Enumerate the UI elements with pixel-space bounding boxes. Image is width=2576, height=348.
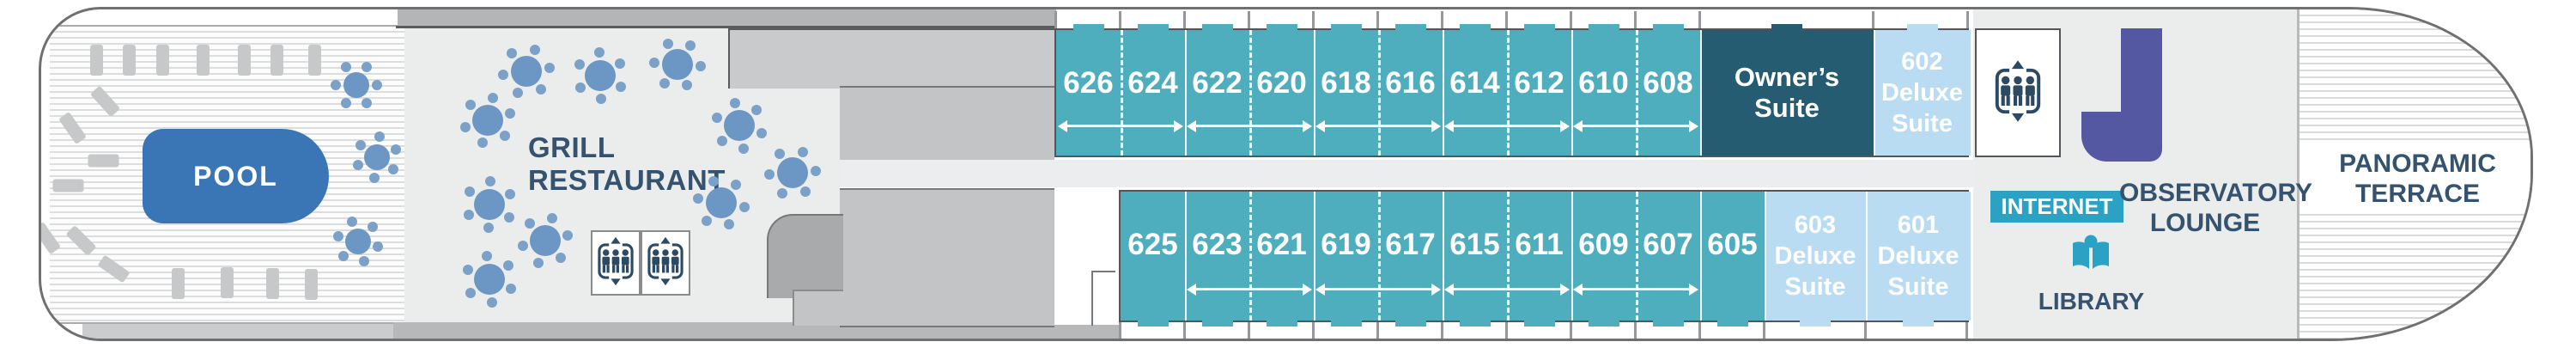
chair <box>359 256 369 266</box>
cabin-divider <box>1185 30 1187 156</box>
suite-label-line: Suite <box>1754 93 1820 124</box>
balcony-partition <box>1864 322 1867 341</box>
superstructure-block <box>840 188 1054 327</box>
connecting-cabins-arrow <box>1324 288 1432 290</box>
cabin-number: 622 <box>1192 66 1242 156</box>
chair <box>547 213 557 223</box>
deck-lounger <box>308 45 321 76</box>
connecting-cabins-arrow <box>1582 288 1690 290</box>
balcony-door <box>1202 24 1233 34</box>
chair <box>544 63 555 73</box>
balcony-door <box>1589 316 1619 327</box>
suite-label-line: 601 <box>1898 210 1939 241</box>
suite-label-line: Deluxe <box>1881 77 1963 108</box>
chair <box>525 218 535 229</box>
balcony-door <box>1460 316 1491 327</box>
suite-603[interactable]: 603DeluxeSuite <box>1765 192 1866 321</box>
chair <box>391 144 401 155</box>
cabin-number: 607 <box>1643 228 1692 321</box>
balcony-door <box>1524 24 1555 34</box>
cabin-divider <box>1249 192 1252 321</box>
balcony-partition <box>1570 11 1572 28</box>
balcony-partition <box>1965 322 1968 341</box>
superstructure-block <box>840 86 1054 163</box>
chair <box>503 260 513 271</box>
deck-lounger <box>53 180 84 192</box>
suite-divider <box>1866 192 1868 321</box>
superstructure-top-band <box>398 9 1056 27</box>
balcony-partition <box>1505 322 1508 341</box>
balcony-partition <box>1763 322 1765 341</box>
terrace-label: PANORAMIC TERRACE <box>2300 149 2533 209</box>
deck-lounger <box>156 45 169 76</box>
deck-lounger <box>90 45 103 76</box>
internet-label: INTERNET <box>2002 193 2113 220</box>
suite-label-line: Suite <box>1888 272 1949 302</box>
deck-lounger <box>305 269 318 300</box>
cabin-divider <box>1443 30 1444 156</box>
balcony-partition <box>1441 322 1443 341</box>
balcony-door <box>1903 316 1934 327</box>
grill-restaurant-label: GRILL RESTAURANT <box>528 131 726 197</box>
superstructure-block <box>793 290 843 326</box>
cabin-number: 608 <box>1643 66 1692 156</box>
balcony-partition <box>1376 322 1379 341</box>
chair <box>775 149 785 159</box>
chair <box>505 108 515 119</box>
chair <box>465 288 476 298</box>
stairwell-block <box>767 214 843 298</box>
balcony-partition <box>1966 11 1969 28</box>
dining-table <box>343 72 369 98</box>
balcony-partition <box>1505 11 1508 28</box>
dining-table <box>511 56 542 87</box>
dining-table <box>345 229 371 254</box>
cabin-divider <box>1636 30 1638 156</box>
balcony-door <box>1267 316 1297 327</box>
service-area-notch <box>1091 271 1115 326</box>
cabin-number: 610 <box>1578 66 1628 156</box>
cabin-number: 619 <box>1321 228 1370 321</box>
cabin-divider <box>1378 30 1381 156</box>
forward-elevator-box <box>1975 28 2061 157</box>
cabin-divider <box>1249 30 1252 156</box>
chair <box>341 98 351 108</box>
internet-badge: INTERNET <box>1990 191 2123 223</box>
cabin-divider <box>1700 30 1702 156</box>
cabin-number: 605 <box>1707 228 1757 321</box>
balcony-partition <box>1698 11 1701 28</box>
suite-label-line: Owner’s <box>1735 62 1839 93</box>
cabin-divider <box>1700 192 1702 321</box>
balcony-partition <box>1312 11 1315 28</box>
cabin-605[interactable]: 605 <box>1700 192 1765 321</box>
balcony-partition <box>1698 322 1701 341</box>
superstructure-block <box>728 28 1056 89</box>
chair <box>505 189 515 199</box>
balcony-door <box>1460 24 1491 34</box>
dining-table <box>724 110 755 141</box>
balcony-door <box>1331 24 1362 34</box>
balcony-door <box>1717 316 1748 327</box>
cabin-618[interactable]: 618 <box>1314 30 1378 156</box>
connecting-cabins-arrow <box>1582 125 1690 127</box>
balcony-door <box>1524 316 1555 327</box>
observatory-label-line1: OBSERVATORY <box>2119 178 2291 208</box>
cabin-divider <box>1121 30 1123 156</box>
dining-table <box>364 144 390 170</box>
balcony-door <box>1202 316 1233 327</box>
cabin-612[interactable]: 612 <box>1507 30 1571 156</box>
balcony-partition <box>1312 322 1315 341</box>
balcony-door <box>1395 24 1426 34</box>
dining-table <box>662 49 693 80</box>
chair <box>530 45 540 55</box>
stairs-shape <box>2081 112 2162 162</box>
cabin-row-bottom: 625623621619617615611609607605603DeluxeS… <box>1119 190 1969 322</box>
deck-lounger <box>238 45 251 76</box>
dining-table <box>706 187 737 218</box>
chair <box>756 128 767 138</box>
balcony-band-top <box>1054 11 1969 28</box>
connecting-cabins-arrow <box>1195 288 1303 290</box>
chair <box>649 58 659 68</box>
chair <box>487 297 497 308</box>
chair <box>368 222 378 232</box>
elevator-icon <box>593 236 638 290</box>
panoramic-terrace-area: PANORAMIC TERRACE <box>2300 9 2533 341</box>
cabin-number: 620 <box>1256 66 1306 156</box>
cabin-divider <box>1765 192 1766 321</box>
balcony-door <box>1331 316 1362 327</box>
deck-lounger <box>197 45 210 76</box>
cabin-number: 617 <box>1385 228 1435 321</box>
balcony-door <box>1395 316 1426 327</box>
cabin-623[interactable]: 623 <box>1185 192 1249 321</box>
stern-lower-deck-band <box>82 324 393 341</box>
cabin-621[interactable]: 621 <box>1249 192 1314 321</box>
elevator-box <box>641 230 690 296</box>
balcony-partition <box>1119 322 1121 341</box>
balcony-partition <box>1570 322 1572 341</box>
chair <box>764 169 775 180</box>
dining-table <box>530 225 561 256</box>
chair <box>739 202 750 212</box>
cabin-number: 626 <box>1063 66 1113 156</box>
cabin-divider <box>1314 192 1315 321</box>
balcony-partition <box>1054 11 1057 28</box>
chair <box>738 143 749 154</box>
grill-label-line1: GRILL <box>528 131 726 164</box>
cabin-number: 612 <box>1514 66 1564 156</box>
suite-owners-suite[interactable]: Owner’sSuite <box>1700 30 1874 156</box>
cabin-616[interactable]: 616 <box>1378 30 1443 156</box>
connecting-cabins-arrow <box>1066 125 1175 127</box>
deck-lounger <box>88 155 119 168</box>
cabin-607[interactable]: 607 <box>1636 192 1700 321</box>
balcony-partition <box>1248 11 1250 28</box>
elevator-icon <box>1990 59 2046 127</box>
dining-table <box>474 189 505 220</box>
cabin-number: 621 <box>1256 228 1306 321</box>
connecting-cabins-arrow <box>1195 125 1303 127</box>
balcony-partition <box>1634 322 1637 341</box>
balcony-partition <box>1183 11 1186 28</box>
cabin-divider <box>1185 192 1187 321</box>
balcony-door <box>1800 316 1831 327</box>
cabin-617[interactable]: 617 <box>1378 192 1443 321</box>
chair <box>533 258 544 268</box>
chair <box>811 166 821 176</box>
cabin-row-top: 626624622620618616614612610608Owner’sSui… <box>1054 28 1969 157</box>
cabin-divider <box>1507 192 1510 321</box>
cabin-615[interactable]: 615 <box>1443 192 1507 321</box>
suite-602[interactable]: 602DeluxeSuite <box>1874 30 1971 156</box>
grill-label-line2: RESTAURANT <box>528 164 726 197</box>
chair <box>798 147 808 157</box>
balcony-partition <box>1376 11 1379 28</box>
deck-lounger <box>172 268 185 299</box>
observatory-label-line2: LOUNGE <box>2119 208 2291 238</box>
cabin-divider <box>1378 192 1381 321</box>
balcony-partition <box>1248 322 1250 341</box>
cabin-622[interactable]: 622 <box>1185 30 1249 156</box>
cabin-number: 616 <box>1385 66 1435 156</box>
deck-plan: PANORAMIC TERRACE POOL GRILL RESTAURANT <box>0 0 2576 348</box>
cabin-divider <box>1571 30 1573 156</box>
cabin-number: 625 <box>1127 228 1177 321</box>
chair <box>702 216 712 226</box>
balcony-partition <box>1441 11 1443 28</box>
chair <box>369 173 380 183</box>
chair <box>663 39 673 49</box>
chair <box>504 212 514 223</box>
balcony-door <box>1653 24 1684 34</box>
deck-lounger <box>123 45 136 76</box>
midship-elevators <box>591 230 690 296</box>
terrace-label-line1: PANORAMIC <box>2300 149 2533 179</box>
dining-table <box>777 157 808 188</box>
chair <box>717 136 727 146</box>
pool: POOL <box>143 129 329 223</box>
suite-label-line: 603 <box>1795 210 1836 241</box>
balcony-door <box>1267 24 1297 34</box>
dining-table <box>472 105 503 136</box>
connecting-cabins-arrow <box>1453 125 1561 127</box>
suite-label-line: 602 <box>1901 46 1942 77</box>
library-label: LIBRARY <box>2012 288 2171 315</box>
connecting-cabins-arrow <box>1453 288 1561 290</box>
cabin-number: 615 <box>1449 228 1499 321</box>
cabin-divider <box>1314 30 1315 156</box>
cabin-divider <box>1507 30 1510 156</box>
balcony-partition <box>1634 11 1637 28</box>
chair <box>708 176 719 186</box>
chair <box>506 284 516 294</box>
cabin-608[interactable]: 608 <box>1636 30 1700 156</box>
cabin-610[interactable]: 610 <box>1571 30 1636 156</box>
chair <box>483 223 494 233</box>
suite-label-line: Suite <box>1785 272 1846 302</box>
chair <box>536 84 546 95</box>
deck-lounger <box>270 45 283 76</box>
dining-table <box>585 60 616 91</box>
suite-label-line: Suite <box>1892 108 1953 139</box>
chair <box>596 94 606 104</box>
suite-label-line: Deluxe <box>1774 241 1856 272</box>
cabin-626[interactable]: 626 <box>1056 30 1121 156</box>
chair <box>616 82 626 92</box>
balcony-door <box>1138 316 1169 327</box>
balcony-door <box>1771 24 1802 34</box>
terrace-label-line2: TERRACE <box>2300 179 2533 209</box>
elevator-box <box>591 230 641 296</box>
cabin-614[interactable]: 614 <box>1443 30 1507 156</box>
cabin-divider <box>1636 192 1638 321</box>
cabin-number: 614 <box>1449 66 1499 156</box>
suite-divider <box>1874 30 1875 156</box>
cabin-number: 624 <box>1127 66 1177 156</box>
balcony-door <box>1589 24 1619 34</box>
chair <box>372 80 382 90</box>
elevator-icon <box>643 236 688 290</box>
chair <box>361 98 372 108</box>
chair <box>518 241 528 251</box>
book-icon <box>2069 233 2112 276</box>
chair <box>373 241 383 252</box>
cabin-number: 609 <box>1578 228 1628 321</box>
balcony-door <box>1653 316 1684 327</box>
cabin-divider <box>1571 192 1573 321</box>
ship-hull: PANORAMIC TERRACE POOL GRILL RESTAURANT <box>39 7 2533 341</box>
cabin-number: 618 <box>1321 66 1370 156</box>
deck-lounger <box>221 267 234 298</box>
suite-label-line: Deluxe <box>1877 241 1959 272</box>
suite-601[interactable]: 601DeluxeSuite <box>1866 192 1971 321</box>
chair <box>730 98 740 108</box>
cabin-number: 623 <box>1192 228 1242 321</box>
connecting-cabins-arrow <box>1324 125 1432 127</box>
balcony-partition <box>1872 11 1874 28</box>
cabin-625[interactable]: 625 <box>1121 192 1185 321</box>
chair <box>659 78 670 89</box>
observatory-lounge-label: OBSERVATORY LOUNGE <box>2119 178 2291 238</box>
cabin-609[interactable]: 609 <box>1571 192 1636 321</box>
cabin-corridor <box>840 160 1975 187</box>
cabin-611[interactable]: 611 <box>1507 192 1571 321</box>
balcony-door <box>1907 24 1938 34</box>
pool-label: POOL <box>193 161 278 192</box>
chair <box>615 58 625 69</box>
chair <box>594 47 605 58</box>
chair <box>355 140 366 150</box>
balcony-partition <box>1183 322 1186 341</box>
chair <box>507 48 517 58</box>
chair <box>465 100 476 110</box>
cabin-number: 611 <box>1515 228 1563 321</box>
chair <box>331 80 341 90</box>
chair <box>333 231 343 241</box>
balcony-partition <box>1119 11 1121 28</box>
chair <box>488 93 498 103</box>
balcony-door <box>1138 24 1169 34</box>
cabin-620[interactable]: 620 <box>1249 30 1314 156</box>
dining-table <box>474 264 505 295</box>
cabin-624[interactable]: 624 <box>1121 30 1185 156</box>
stairs-shape <box>2121 28 2162 118</box>
deck-lounger <box>266 268 279 299</box>
cabin-619[interactable]: 619 <box>1314 192 1378 321</box>
balcony-door <box>1073 24 1104 34</box>
cabin-divider <box>1443 192 1444 321</box>
